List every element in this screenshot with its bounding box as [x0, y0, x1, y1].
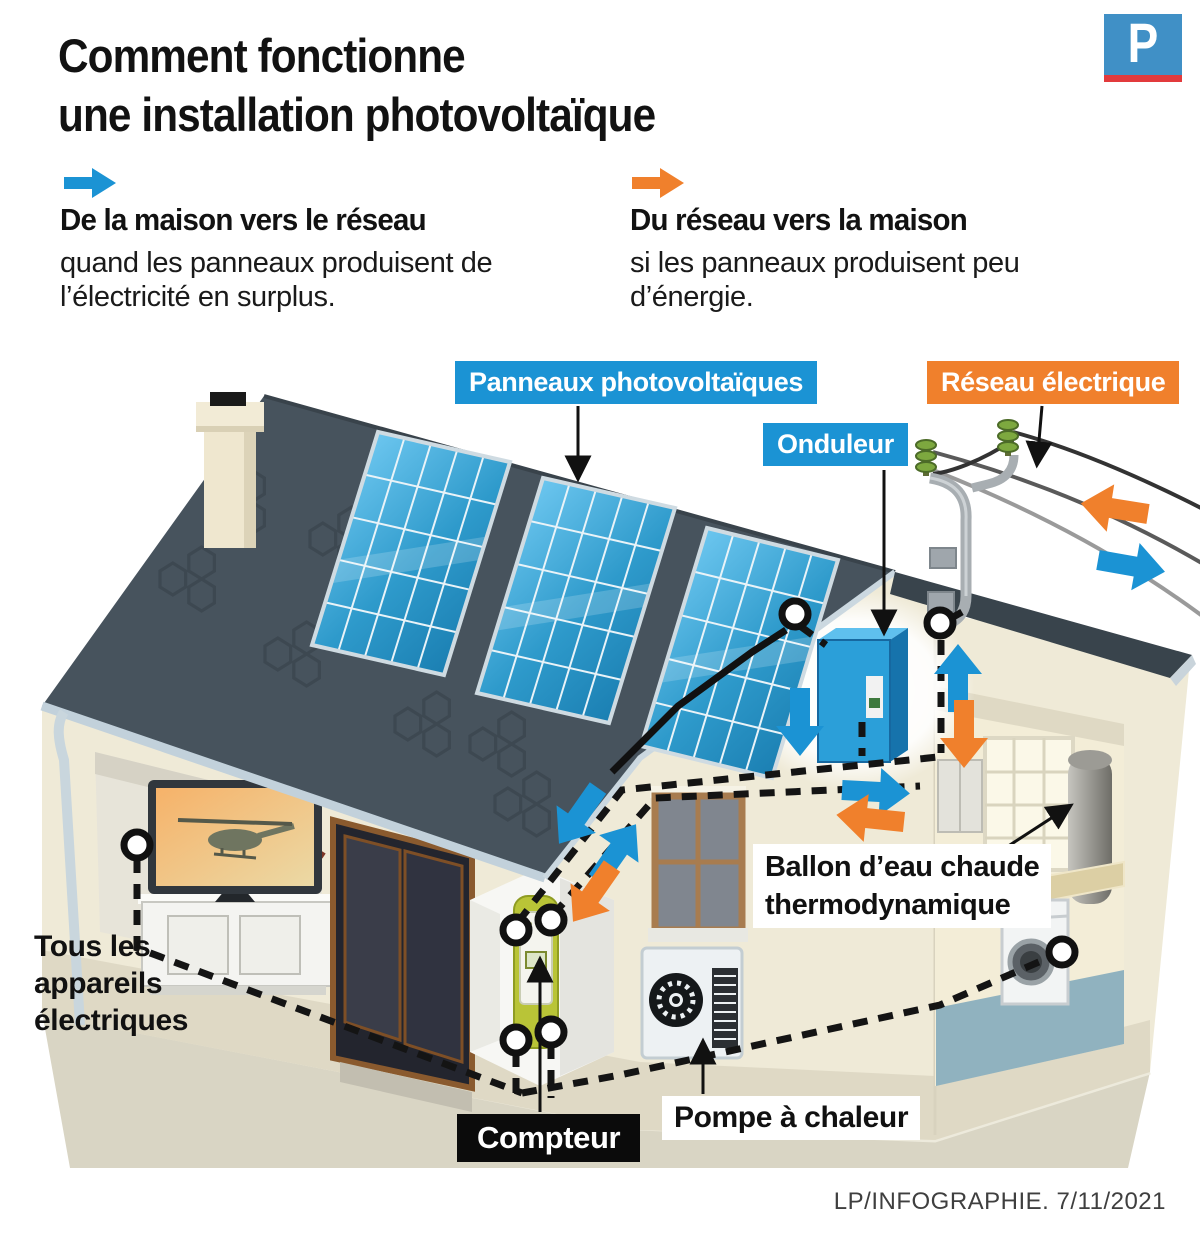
credit-line: LP/INFOGRAPHIE. 7/11/2021 [834, 1188, 1166, 1216]
label-heat-pump: Pompe à chaleur [662, 1096, 920, 1140]
orange-arrow-icon [630, 166, 686, 200]
helicopter-image [208, 829, 262, 851]
title-line-1: Comment fonctionne [58, 26, 655, 85]
insulator-icon [998, 420, 1018, 456]
label-solar-panels: Panneaux photovoltaïques [455, 361, 817, 404]
logo-red-bar [1104, 75, 1182, 82]
heat-pump-unit [642, 948, 742, 1058]
insulator-icon [916, 440, 936, 476]
label-grid: Réseau électrique [927, 361, 1179, 404]
label-meter: Compteur [457, 1114, 640, 1162]
legend-export-title: De la maison vers le réseau [60, 202, 426, 238]
publisher-logo: P [1104, 14, 1182, 82]
legend-import-title: Du réseau vers la maison [630, 202, 967, 238]
label-appliances: Tous les appareils électriques [34, 928, 188, 1039]
window [648, 786, 748, 942]
chimney [196, 392, 264, 548]
blue-arrow-icon [62, 166, 118, 200]
label-inverter: Onduleur [763, 423, 908, 466]
inverter-box [818, 628, 908, 762]
house-illustration [0, 0, 1200, 1243]
page-title: Comment fonctionne une installation phot… [58, 26, 655, 144]
tv [148, 780, 322, 902]
logo-letter: P [1111, 12, 1175, 70]
grid-wire [933, 452, 1200, 565]
legend-export-description: quand les panneaux produisent de l’élect… [60, 246, 580, 314]
legend-import-description: si les panneaux produisent peu d’énergie… [630, 246, 1100, 314]
title-line-2: une installation photovoltaïque [58, 85, 655, 144]
infographic-page: Comment fonctionne une installation phot… [0, 0, 1200, 1243]
label-water-heater: Ballon d’eau chaude thermodynamique [753, 844, 1051, 928]
